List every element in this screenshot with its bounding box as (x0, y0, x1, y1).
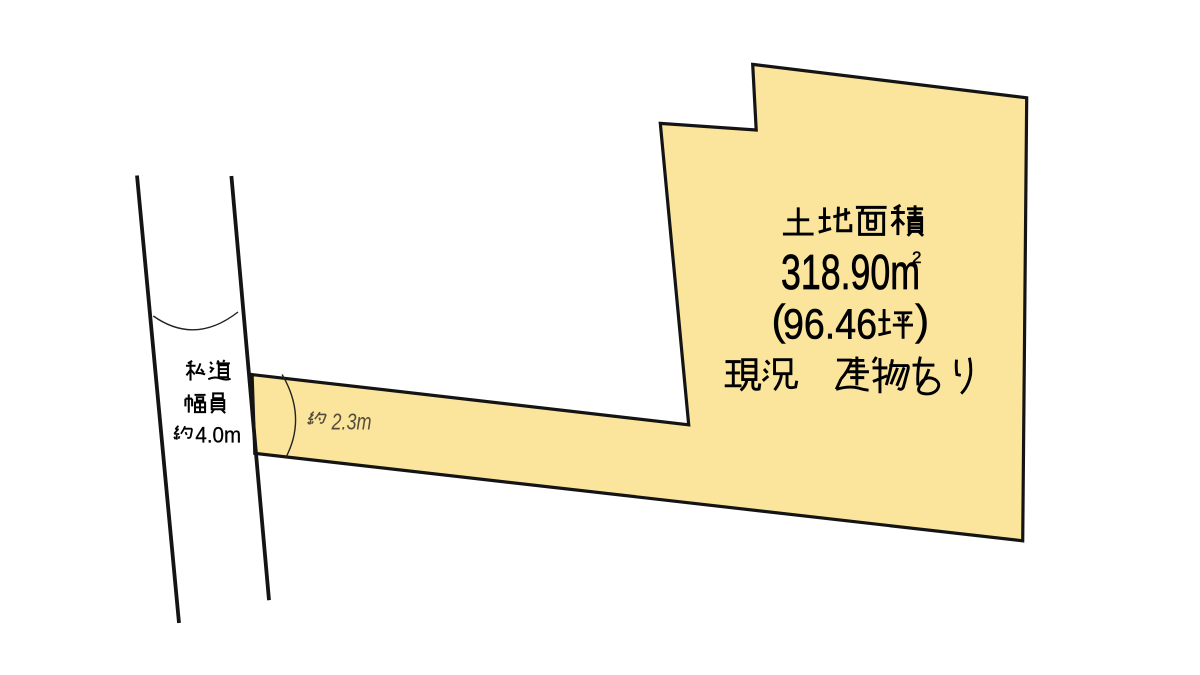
svg-text:4.0m: 4.0m (195, 422, 241, 447)
svg-text:2.3m: 2.3m (331, 408, 372, 434)
svg-text:): ) (915, 298, 929, 345)
svg-text:2: 2 (912, 248, 921, 267)
svg-text:318.90m: 318.90m (781, 245, 920, 300)
svg-text:96.46: 96.46 (783, 302, 877, 349)
